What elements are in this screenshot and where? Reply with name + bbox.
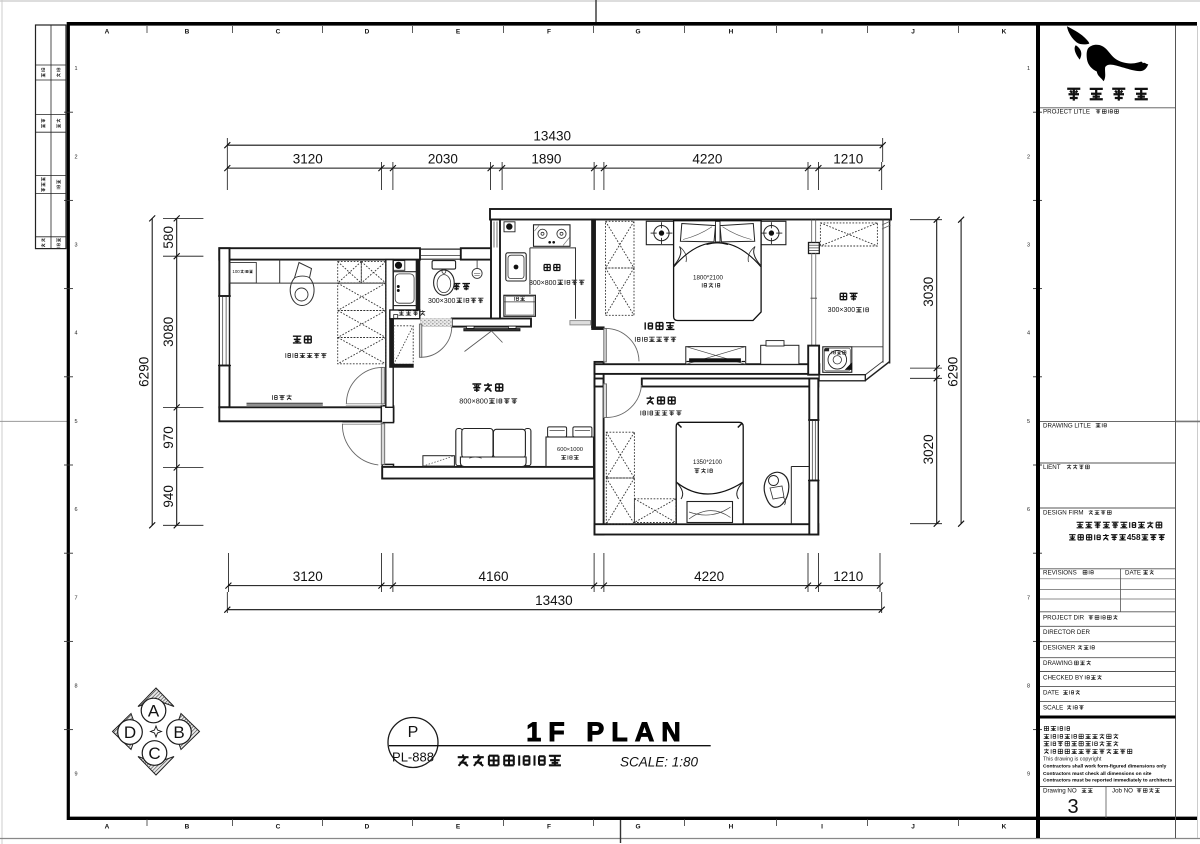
svg-text:H: H (729, 824, 734, 831)
svg-text:3030: 3030 (921, 277, 936, 307)
svg-text:8: 8 (1027, 684, 1030, 690)
svg-text:A: A (105, 29, 110, 36)
svg-text:D: D (365, 29, 370, 36)
svg-text:2: 2 (75, 154, 78, 160)
svg-text:1800*2100: 1800*2100 (693, 275, 723, 282)
svg-text:300×800: 300×800 (529, 280, 557, 287)
svg-text:2030: 2030 (428, 151, 458, 166)
svg-text:6: 6 (75, 507, 78, 513)
svg-text:4: 4 (1027, 331, 1030, 337)
svg-text:CHECKED BY: CHECKED BY (1043, 675, 1083, 682)
svg-text:Job NO: Job NO (1112, 788, 1133, 795)
svg-text:1: 1 (1027, 66, 1030, 72)
svg-text:1F PLAN: 1F PLAN (526, 717, 688, 747)
svg-text:G: G (635, 824, 640, 831)
svg-text:4: 4 (75, 331, 78, 337)
svg-text:800×800: 800×800 (459, 397, 488, 406)
svg-text:This drawing is copyright: This drawing is copyright (1043, 756, 1102, 762)
svg-text:3120: 3120 (293, 569, 323, 584)
svg-text:4220: 4220 (694, 569, 724, 584)
svg-text:300×300: 300×300 (828, 307, 856, 314)
svg-text:PROJECT DIR: PROJECT DIR (1043, 615, 1085, 622)
svg-text:8: 8 (75, 684, 78, 690)
svg-text:B: B (185, 29, 190, 36)
svg-text:3020: 3020 (921, 434, 936, 464)
svg-text:J: J (911, 29, 915, 36)
svg-text:Drawing NO: Drawing NO (1043, 788, 1077, 795)
svg-text:940: 940 (161, 485, 176, 508)
svg-text:3: 3 (1027, 243, 1030, 249)
svg-text:DESIGNER: DESIGNER (1043, 645, 1076, 652)
svg-text:D: D (365, 824, 370, 831)
svg-text:7: 7 (75, 595, 78, 601)
svg-text:9: 9 (1027, 772, 1030, 778)
svg-text:5: 5 (75, 419, 78, 425)
svg-text:Contractors must check all dim: Contractors must check all dimensions on… (1043, 771, 1152, 777)
svg-text:REVISIONS: REVISIONS (1043, 570, 1077, 577)
svg-text:G: G (635, 29, 640, 36)
svg-text:C: C (276, 29, 281, 36)
svg-text:2: 2 (1027, 154, 1030, 160)
svg-text:LIENT: LIENT (1043, 464, 1061, 471)
svg-text:1210: 1210 (833, 569, 863, 584)
svg-text:PROJECT LITLE: PROJECT LITLE (1043, 109, 1090, 116)
svg-text:PL-888: PL-888 (392, 750, 434, 765)
svg-text:580: 580 (161, 226, 176, 249)
svg-text:6290: 6290 (946, 357, 961, 387)
svg-text:13430: 13430 (535, 593, 573, 608)
svg-text:D: D (124, 723, 136, 742)
svg-text:F: F (547, 824, 551, 831)
svg-text:A: A (148, 702, 160, 721)
svg-text:I: I (821, 824, 823, 831)
svg-text:100: 100 (232, 269, 240, 274)
svg-text:3080: 3080 (161, 317, 176, 347)
svg-text:A: A (105, 824, 110, 831)
svg-text:C: C (148, 744, 160, 763)
svg-text:970: 970 (161, 426, 176, 449)
svg-text:E: E (456, 29, 461, 36)
svg-text:DRAWING LITLE: DRAWING LITLE (1043, 422, 1091, 429)
svg-text:F: F (547, 29, 551, 36)
svg-text:DATE: DATE (1043, 690, 1059, 697)
svg-text:300×300: 300×300 (428, 298, 456, 305)
svg-text:J: J (911, 824, 915, 831)
svg-text:4220: 4220 (692, 151, 722, 166)
svg-text:13430: 13430 (533, 129, 571, 144)
svg-text:K: K (1002, 824, 1007, 831)
svg-text:6290: 6290 (137, 357, 152, 387)
svg-text:4160: 4160 (478, 569, 508, 584)
svg-text:H: H (729, 29, 734, 36)
svg-text:DATE: DATE (1125, 570, 1141, 577)
svg-text:DIRECTOR DER: DIRECTOR DER (1043, 629, 1091, 636)
svg-text:6: 6 (1027, 507, 1030, 513)
svg-text:I: I (821, 29, 823, 36)
svg-text:B: B (173, 723, 184, 742)
svg-text:P: P (408, 724, 419, 741)
svg-text:B: B (185, 824, 190, 831)
svg-text:C: C (276, 824, 281, 831)
svg-text:DESIGN FIRM: DESIGN FIRM (1043, 510, 1084, 517)
svg-text:3: 3 (1067, 796, 1078, 818)
svg-text:5: 5 (1027, 419, 1030, 425)
svg-text:458: 458 (1127, 533, 1141, 542)
svg-text:600×1000: 600×1000 (557, 447, 583, 453)
svg-text:SCALE: 1:80: SCALE: 1:80 (620, 755, 699, 770)
svg-text:Contractors shall work form-fi: Contractors shall work form-figured dime… (1043, 764, 1167, 770)
svg-text:7: 7 (1027, 595, 1030, 601)
svg-text:1350*2100: 1350*2100 (693, 460, 723, 466)
svg-text:DRAWING: DRAWING (1043, 660, 1073, 667)
svg-text:E: E (456, 824, 461, 831)
svg-text:K: K (1002, 29, 1007, 36)
svg-text:3: 3 (75, 243, 78, 249)
svg-text:1890: 1890 (531, 151, 561, 166)
svg-text:1: 1 (75, 66, 78, 72)
svg-text:Contractors must be reported i: Contractors must be reported immediately… (1043, 778, 1172, 784)
svg-text:3120: 3120 (293, 151, 323, 166)
svg-text:9: 9 (75, 772, 78, 778)
svg-text:SCALE: SCALE (1043, 705, 1063, 712)
svg-text:1210: 1210 (833, 151, 863, 166)
